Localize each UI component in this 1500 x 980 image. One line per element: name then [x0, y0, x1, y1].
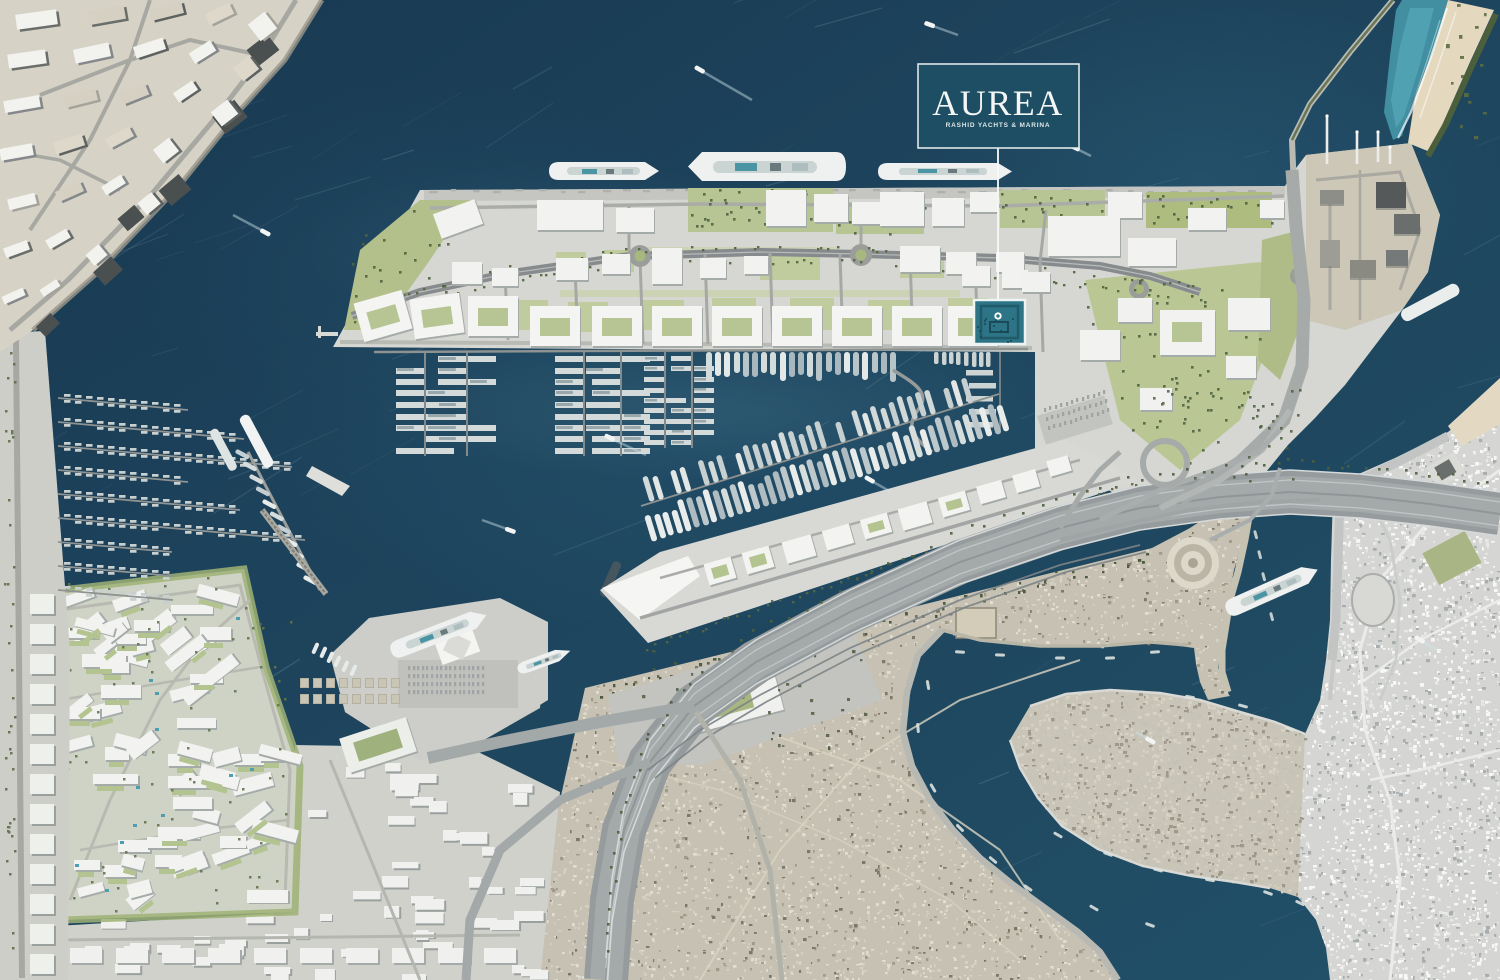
svg-text:RASHID YACHTS & MARINA: RASHID YACHTS & MARINA: [946, 122, 1051, 129]
svg-text:AUREA: AUREA: [932, 83, 1064, 123]
